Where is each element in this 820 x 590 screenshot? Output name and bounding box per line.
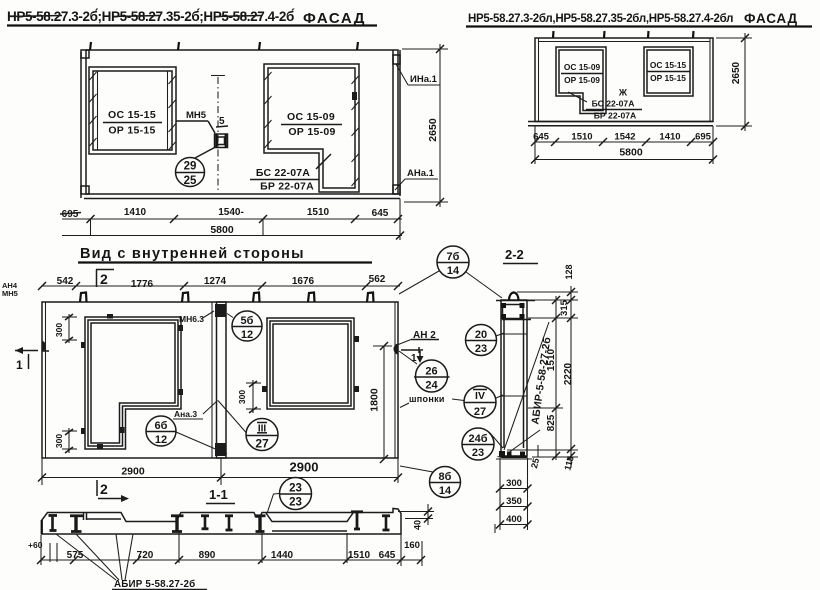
svg-text:АНа.1: АНа.1 (407, 168, 435, 179)
svg-text:Ана.3: Ана.3 (174, 409, 197, 419)
svg-text:24: 24 (425, 380, 438, 392)
svg-text:14: 14 (439, 485, 452, 497)
svg-text:1800: 1800 (369, 388, 381, 412)
svg-text:1510: 1510 (307, 207, 330, 218)
svg-text:БС 22-07А: БС 22-07А (592, 99, 635, 109)
svg-text:ОС 15-15: ОС 15-15 (650, 60, 687, 70)
svg-text:300: 300 (54, 323, 64, 337)
svg-text:562: 562 (369, 274, 386, 285)
svg-text:2900: 2900 (290, 460, 319, 475)
svg-text:2: 2 (100, 271, 108, 287)
svg-text:300: 300 (237, 390, 247, 404)
svg-text:23: 23 (289, 483, 302, 495)
svg-text:2: 2 (100, 481, 108, 497)
svg-text:23: 23 (289, 497, 302, 509)
svg-text:27: 27 (255, 437, 269, 451)
svg-text:29: 29 (184, 161, 197, 173)
svg-text:160: 160 (404, 540, 420, 551)
svg-text:14: 14 (447, 265, 460, 277)
svg-text:МН6.3: МН6.3 (179, 314, 204, 324)
svg-text:1540-: 1540- (218, 207, 244, 218)
svg-text:2900: 2900 (121, 466, 145, 478)
svg-text:1-1: 1-1 (209, 487, 228, 502)
svg-text:5800: 5800 (210, 224, 234, 236)
svg-text:1510: 1510 (546, 348, 557, 371)
svg-text:1410: 1410 (659, 132, 680, 143)
svg-text:8б: 8б (439, 471, 452, 483)
svg-text:645: 645 (372, 208, 389, 219)
svg-text:Вид с внутренней стороны: Вид с внутренней стороны (80, 246, 305, 262)
svg-text:1510: 1510 (571, 132, 592, 143)
svg-text:1440: 1440 (271, 550, 294, 561)
svg-text:825: 825 (546, 414, 557, 431)
svg-text:ОС 15-15: ОС 15-15 (108, 109, 156, 121)
svg-text:542: 542 (57, 276, 74, 287)
svg-text:5800: 5800 (619, 147, 643, 159)
svg-text:7б: 7б (447, 251, 460, 263)
svg-text:ОС 15-09: ОС 15-09 (564, 62, 601, 72)
svg-text:40: 40 (413, 520, 423, 530)
svg-text:1274: 1274 (204, 276, 227, 287)
svg-text:1410: 1410 (124, 207, 147, 218)
svg-text:БР 22-07А: БР 22-07А (594, 111, 636, 121)
svg-text:ОС 15-09: ОС 15-09 (287, 111, 335, 123)
svg-text:БР 22-07А: БР 22-07А (260, 181, 314, 193)
svg-text:695: 695 (695, 132, 712, 143)
svg-text:БС 22-07А: БС 22-07А (256, 167, 310, 179)
svg-text:ИНа.1: ИНа.1 (410, 74, 438, 85)
svg-text:2650: 2650 (731, 61, 742, 84)
svg-text:5б: 5б (241, 315, 254, 327)
svg-text:645: 645 (533, 132, 550, 143)
svg-text:20: 20 (475, 329, 487, 341)
svg-text:ОР 15-09: ОР 15-09 (564, 75, 600, 85)
svg-text:645: 645 (379, 550, 396, 561)
svg-text:2220: 2220 (563, 362, 574, 385)
svg-text:НР5-58.27.3-2бл,НР5-58.27.35-2: НР5-58.27.3-2бл,НР5-58.27.35-2бл,НР5-58.… (468, 13, 733, 25)
svg-text:23: 23 (472, 447, 484, 459)
svg-text:27: 27 (474, 406, 486, 418)
svg-text:МН5: МН5 (186, 110, 207, 121)
svg-text:12: 12 (241, 329, 253, 341)
svg-text:350: 350 (506, 496, 522, 507)
svg-text:2-2: 2-2 (505, 247, 524, 262)
svg-text:890: 890 (199, 550, 216, 561)
svg-text:695: 695 (62, 209, 79, 220)
svg-text:23: 23 (475, 343, 487, 355)
svg-text:1776: 1776 (131, 279, 154, 290)
svg-text:6б: 6б (155, 420, 168, 432)
svg-text:МН5: МН5 (2, 289, 18, 298)
svg-text:300: 300 (506, 478, 522, 489)
svg-text:+60: +60 (28, 540, 43, 550)
svg-text:5: 5 (219, 116, 225, 127)
svg-text:1542: 1542 (614, 132, 635, 143)
svg-text:IV: IV (475, 390, 485, 402)
svg-text:128: 128 (564, 264, 574, 279)
svg-text:24б: 24б (468, 433, 487, 445)
svg-text:ОР 15-15: ОР 15-15 (108, 125, 155, 137)
svg-text:Ж: Ж (618, 88, 628, 98)
svg-text:2650: 2650 (427, 118, 439, 142)
svg-text:300: 300 (54, 434, 64, 448)
svg-text:25: 25 (184, 175, 197, 187)
svg-text:400: 400 (506, 514, 522, 525)
svg-text:1676: 1676 (292, 276, 315, 287)
svg-text:ОР 15-15: ОР 15-15 (650, 73, 686, 83)
svg-text:1: 1 (16, 358, 23, 372)
svg-text:12: 12 (155, 434, 167, 446)
svg-text:НР5-58.27.3-2б́;НР5-58.27.35-2: НР5-58.27.3-2б́;НР5-58.27.35-2б́;НР5-58.… (7, 9, 295, 24)
svg-text:575: 575 (67, 550, 84, 561)
svg-text:ФАСАД: ФАСАД (744, 11, 798, 26)
svg-text:720: 720 (137, 550, 154, 561)
svg-text:АБИР 5-58.27-2б: АБИР 5-58.27-2б (114, 579, 195, 590)
svg-text:26: 26 (425, 366, 437, 378)
svg-text:шпонки: шпонки (409, 394, 445, 404)
svg-text:ОР 15-09: ОР 15-09 (288, 126, 335, 138)
svg-text:1510: 1510 (348, 550, 371, 561)
